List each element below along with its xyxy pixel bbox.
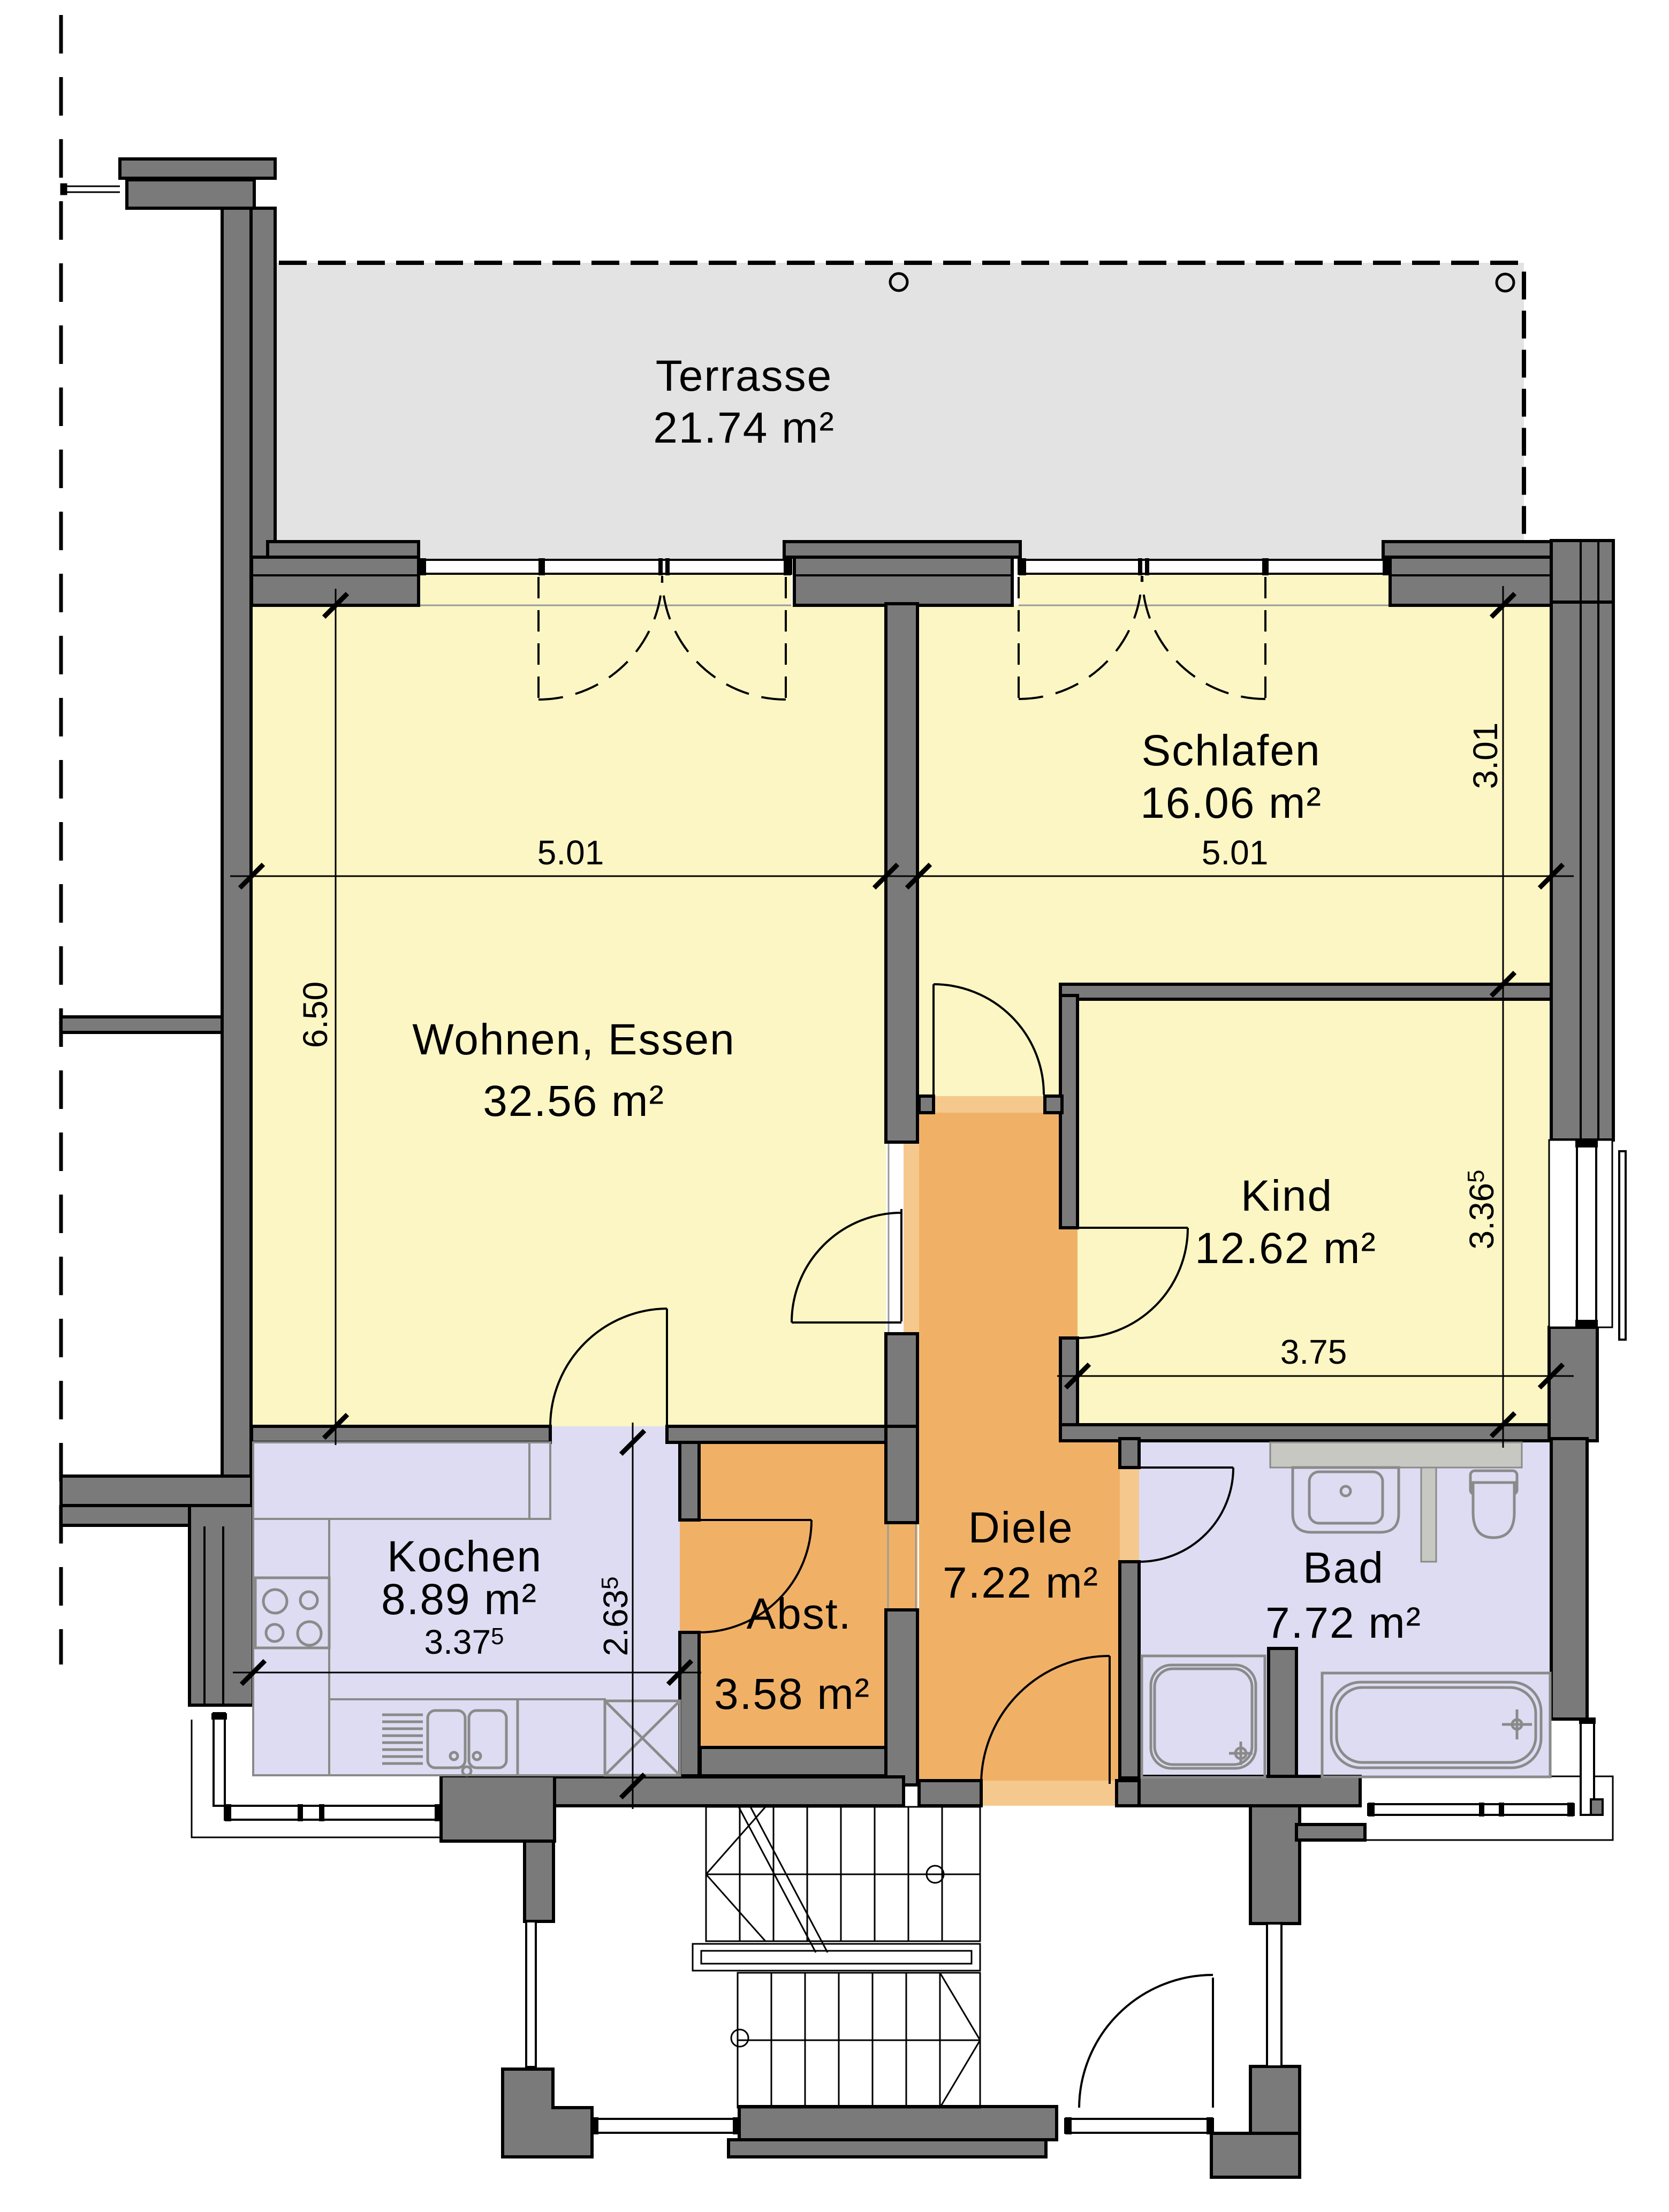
svg-text:3.58 m²: 3.58 m² xyxy=(714,1670,870,1719)
svg-text:Terrasse: Terrasse xyxy=(656,352,832,400)
svg-text:Bad: Bad xyxy=(1303,1544,1384,1592)
svg-text:6.50: 6.50 xyxy=(296,982,335,1048)
svg-text:3.01: 3.01 xyxy=(1466,723,1505,789)
svg-text:Schlafen: Schlafen xyxy=(1141,726,1321,775)
svg-text:Wohnen, Essen: Wohnen, Essen xyxy=(412,1015,735,1064)
svg-text:Kind: Kind xyxy=(1241,1172,1333,1220)
svg-text:32.56 m²: 32.56 m² xyxy=(483,1077,665,1126)
svg-text:Abst.: Abst. xyxy=(747,1590,852,1638)
svg-text:21.74 m²: 21.74 m² xyxy=(653,404,835,452)
svg-text:7.72 m²: 7.72 m² xyxy=(1265,1599,1422,1647)
svg-text:5.01: 5.01 xyxy=(537,833,604,872)
svg-text:Kochen: Kochen xyxy=(387,1532,542,1581)
svg-text:12.62 m²: 12.62 m² xyxy=(1195,1224,1377,1273)
svg-text:5.01: 5.01 xyxy=(1202,833,1269,872)
svg-text:8.89 m²: 8.89 m² xyxy=(381,1575,537,1624)
svg-text:7.22 m²: 7.22 m² xyxy=(943,1559,1099,1607)
svg-text:Diele: Diele xyxy=(968,1503,1074,1552)
svg-text:16.06 m²: 16.06 m² xyxy=(1140,779,1322,827)
svg-text:3.75: 3.75 xyxy=(1280,1333,1347,1371)
